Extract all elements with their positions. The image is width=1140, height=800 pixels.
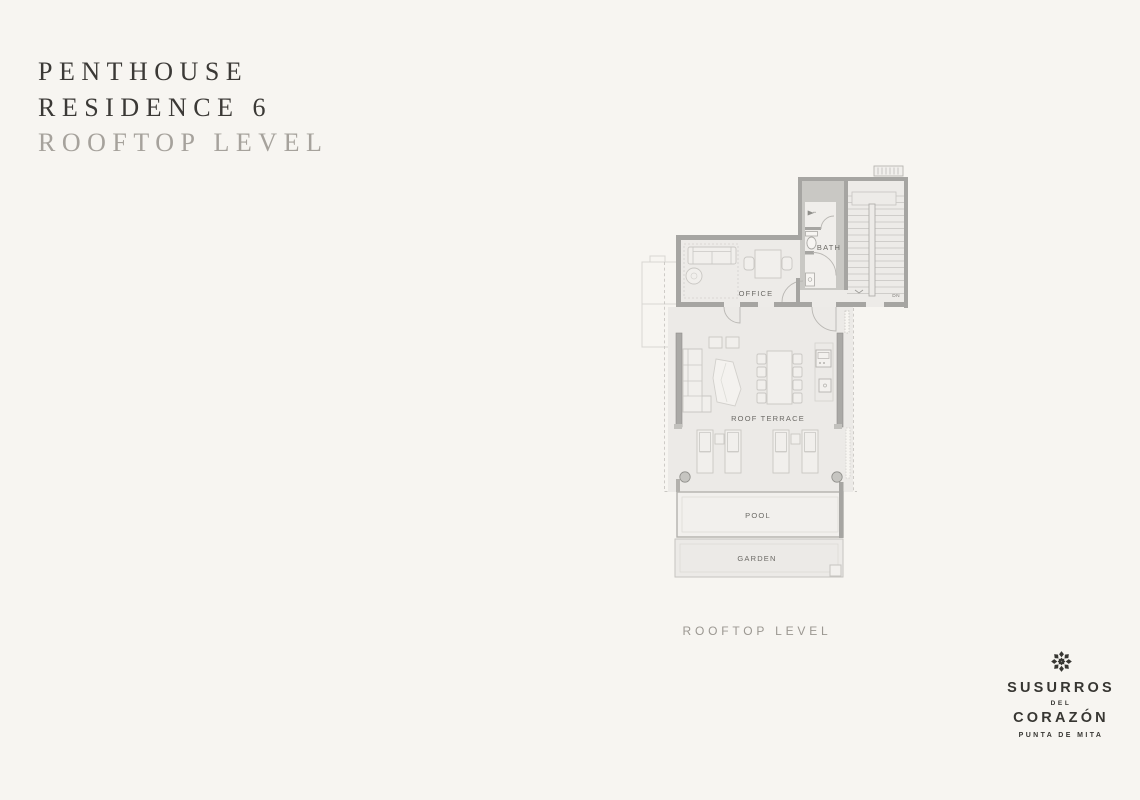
office-sofa — [688, 247, 736, 264]
lounge-side-table — [791, 434, 800, 444]
rosette-icon — [1050, 650, 1073, 673]
pool-label: POOL — [745, 511, 771, 520]
roof-vent — [874, 166, 903, 176]
garden-label: GARDEN — [737, 554, 776, 563]
room-bath — [800, 179, 848, 290]
roof-terrace-label: ROOF TERRACE — [731, 414, 805, 423]
brand-logo: SUSURROS DEL CORAZÓN PUNTA DE MITA — [1006, 650, 1116, 739]
page-title: PENTHOUSE RESIDENCE 6 ROOFTOP LEVEL — [38, 54, 328, 161]
toilet-icon — [806, 232, 818, 250]
title-line-1: PENTHOUSE — [38, 54, 328, 90]
lounge-side-table — [715, 434, 724, 444]
title-line-2: RESIDENCE 6 — [38, 90, 328, 126]
plan-level-caption: ROOFTOP LEVEL — [597, 624, 917, 638]
stair-landing — [852, 192, 896, 205]
title-line-3: ROOFTOP LEVEL — [38, 125, 328, 161]
brand-name-del: DEL — [1006, 700, 1116, 707]
kitchen-sink-icon — [819, 379, 831, 392]
bath-label: BATH — [817, 243, 841, 252]
terrace-ottoman — [709, 337, 722, 348]
stair-rail — [869, 204, 875, 296]
stairs-down-label: DN — [892, 293, 900, 299]
brand-name-top: SUSURROS — [1006, 680, 1116, 696]
floor-plan: DN — [615, 155, 935, 595]
brand-name-bottom: CORAZÓN — [1006, 710, 1116, 726]
office-label: OFFICE — [739, 289, 774, 298]
office-side-table — [686, 268, 702, 284]
sink-icon — [806, 273, 815, 286]
brand-location: PUNTA DE MITA — [1006, 732, 1116, 739]
terrace-ottoman — [726, 337, 739, 348]
